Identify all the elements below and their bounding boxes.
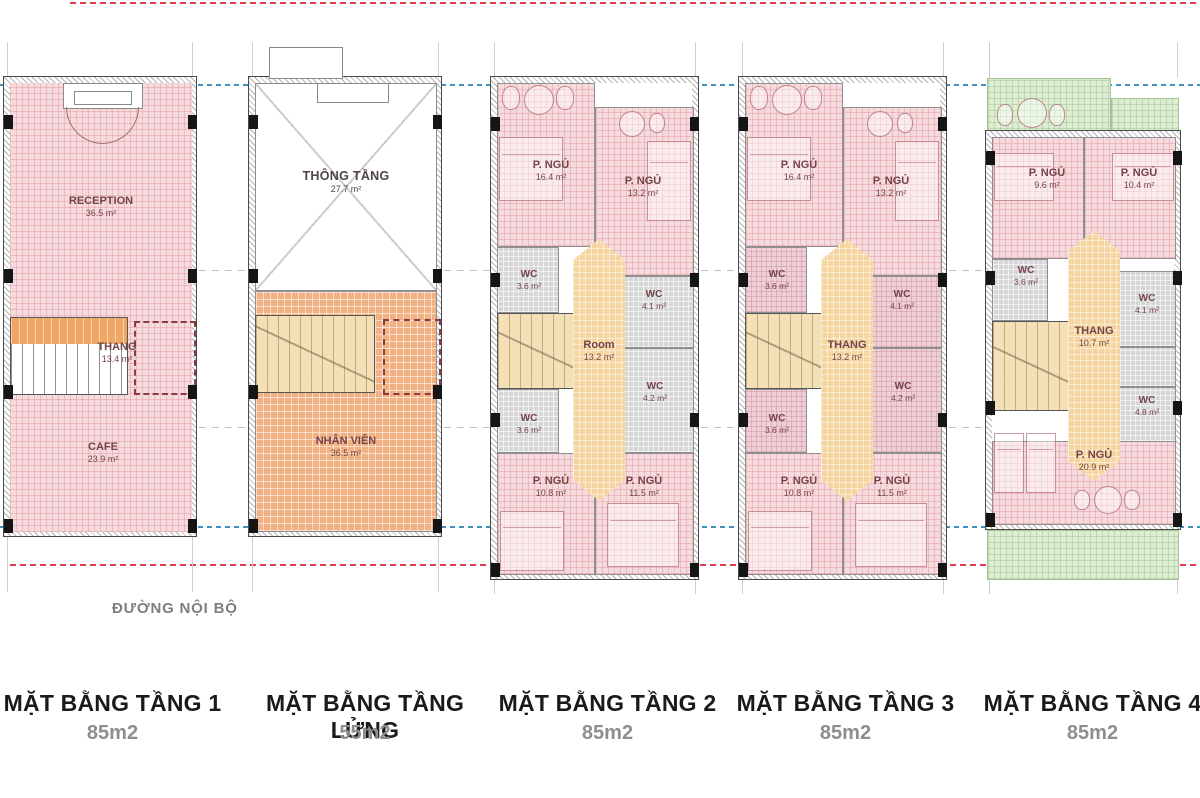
plan-tang4-walls: P. NGỦ 9.6 m² P. NGỦ 10.4 m² WC 3.6 m² W… (985, 130, 1181, 530)
balcony-ledge (317, 83, 389, 103)
round-table (1094, 486, 1122, 514)
chair (1074, 490, 1090, 510)
plan-tang2-interior: P. NGỦ 16.4 m² P. NGỦ 13.2 m² WC 3.6 m² … (497, 83, 692, 573)
column (938, 563, 947, 577)
wc-right-upper (865, 276, 942, 348)
grid-line (989, 42, 990, 78)
round-table (867, 111, 893, 137)
grid-line (252, 537, 253, 592)
room-label-bedroom-3: P. NGỦ 10.8 m² (507, 475, 595, 499)
plan-tang-lung-interior: THÔNG TẦNG 27.7 m² NHÂN VIÊN 36.5 m² (255, 83, 435, 530)
column (491, 563, 500, 577)
room-label-bedroom-3: P. NGỦ 10.8 m² (755, 475, 843, 499)
room-label-bedroom-3: P. NGỦ 20.9 m² (1054, 449, 1134, 473)
title-tang4: MẶT BẰNG TẦNG 4 (980, 690, 1200, 717)
grid-tie-line (444, 427, 490, 428)
column (986, 271, 995, 285)
column (4, 115, 13, 129)
grid-line (742, 580, 743, 594)
grid-line (192, 42, 193, 76)
chair (502, 86, 520, 110)
column (188, 115, 197, 129)
column (4, 385, 13, 399)
grid-line (438, 537, 439, 592)
road-label: ĐƯỜNG NỘI BỘ (112, 600, 238, 617)
column (690, 273, 699, 287)
column (188, 385, 197, 399)
void-dashed-outline (383, 319, 441, 395)
round-table (524, 85, 554, 115)
plan-tang1: RECEPTION 36.5 m² THANG 13.4 m² CAFE 23.… (3, 76, 197, 537)
room-label-wc-2: WC 4.1 m² (871, 289, 933, 311)
bed (1026, 433, 1056, 493)
column (690, 563, 699, 577)
column (739, 563, 748, 577)
column (1173, 513, 1182, 527)
column (433, 385, 442, 399)
grid-line (989, 580, 990, 594)
plan-tang1-interior: RECEPTION 36.5 m² THANG 13.4 m² CAFE 23.… (10, 83, 190, 530)
room-label-central-room: Room 13.2 m² (569, 339, 629, 363)
room-label-bedroom-1: P. NGỦ 16.4 m² (755, 159, 843, 183)
room-label-wc-2: WC 4.1 m² (1119, 293, 1175, 315)
chair (1049, 104, 1065, 126)
room-label-bedroom-1: P. NGỦ 9.6 m² (1009, 167, 1085, 191)
column (4, 269, 13, 283)
grid-line (742, 42, 743, 76)
stair-tang2 (497, 313, 579, 389)
room-label-wc-2: WC 4.1 m² (623, 289, 685, 311)
column (188, 519, 197, 533)
bed (748, 511, 812, 571)
plan-tang3-interior: P. NGỦ 16.4 m² P. NGỦ 13.2 m² WC 3.6 m² … (745, 83, 940, 573)
column (690, 413, 699, 427)
column (188, 269, 197, 283)
bed (994, 433, 1024, 493)
column (938, 117, 947, 131)
room-label-thong-tang: THÔNG TẦNG 27.7 m² (296, 169, 396, 195)
column (491, 273, 500, 287)
grid-line (252, 42, 253, 76)
round-table (1017, 98, 1047, 128)
grid-line (494, 42, 495, 76)
bed (607, 503, 679, 567)
room-label-wc-3: WC 4.2 m² (625, 381, 685, 403)
room-label-wc-1: WC 3.6 m² (500, 269, 558, 291)
grid-line (943, 42, 944, 76)
column (739, 117, 748, 131)
grid-line (695, 580, 696, 594)
room-label-wc-1: WC 3.6 m² (1000, 265, 1052, 287)
floor-plan-sheet: RECEPTION 36.5 m² THANG 13.4 m² CAFE 23.… (0, 0, 1200, 798)
setback-line-top (70, 2, 1200, 4)
column (986, 401, 995, 415)
area-tang2: 85m2 (495, 722, 720, 745)
room-label-nhan-vien: NHÂN VIÊN 36.5 m² (296, 435, 396, 459)
room-label-bedroom-4: P. NGỦ 11.5 m² (600, 475, 688, 499)
column (1173, 271, 1182, 285)
column (739, 413, 748, 427)
column (249, 519, 258, 533)
title-tang1: MẶT BẰNG TẦNG 1 (0, 690, 225, 717)
plan-tang-lung: THÔNG TẦNG 27.7 m² NHÂN VIÊN 36.5 m² (248, 76, 442, 537)
terrace-bottom (987, 530, 1179, 580)
column (433, 115, 442, 129)
room-label-wc-4: WC 3.6 m² (500, 413, 558, 435)
room-label-wc-4: WC 3.6 m² (748, 413, 806, 435)
room-label-central-stair: THANG 10.7 m² (1064, 325, 1124, 349)
grid-line (1177, 580, 1178, 594)
grid-tie-line (949, 270, 985, 271)
room-label-bedroom-2: P. NGỦ 13.2 m² (599, 175, 687, 199)
column (433, 519, 442, 533)
entrance-step (74, 91, 132, 105)
room-label-central-stair: THANG 13.2 m² (817, 339, 877, 363)
room-label-wc-1: WC 3.6 m² (748, 269, 806, 291)
wc-right-upper (617, 276, 694, 348)
bed (855, 503, 927, 567)
stair-tang-lung (255, 315, 375, 393)
title-tang2: MẶT BẰNG TẦNG 2 (495, 690, 720, 717)
column (739, 273, 748, 287)
grid-line (7, 537, 8, 592)
column (1173, 151, 1182, 165)
plan-tang4-interior: P. NGỦ 9.6 m² P. NGỦ 10.4 m² WC 3.6 m² W… (992, 137, 1174, 523)
room-label-bedroom-2: P. NGỦ 13.2 m² (847, 175, 935, 199)
column (690, 117, 699, 131)
grid-line (7, 42, 8, 76)
room-label-wc-3: WC 4.8 m² (1119, 395, 1175, 417)
roof-canopy (269, 47, 343, 79)
grid-tie-line (444, 270, 490, 271)
room-label-reception: RECEPTION 36.5 m² (51, 195, 151, 219)
grid-tie-line (949, 427, 985, 428)
room-label-thang: THANG 13.4 m² (69, 341, 165, 365)
chair (556, 86, 574, 110)
column (433, 269, 442, 283)
plan-tang3: P. NGỦ 16.4 m² P. NGỦ 13.2 m² WC 3.6 m² … (738, 76, 947, 580)
grid-line (494, 580, 495, 594)
column (491, 413, 500, 427)
central-stair-core (1068, 231, 1120, 481)
column (249, 115, 258, 129)
grid-line (438, 42, 439, 76)
area-tang3: 85m2 (733, 722, 958, 745)
chair (897, 113, 913, 133)
central-stair-core (821, 239, 873, 501)
area-tang4: 85m2 (980, 722, 1200, 745)
chair (804, 86, 822, 110)
room-label-bedroom-4: P. NGỦ 11.5 m² (848, 475, 936, 499)
grid-tie-line (701, 427, 738, 428)
column (938, 413, 947, 427)
column (986, 513, 995, 527)
area-tang1: 85m2 (0, 722, 225, 745)
room-label-bedroom-2: P. NGỦ 10.4 m² (1101, 167, 1177, 191)
room-label-cafe: CAFE 23.9 m² (53, 441, 153, 465)
room-label-bedroom-1: P. NGỦ 16.4 m² (507, 159, 595, 183)
column (4, 519, 13, 533)
grid-line (695, 42, 696, 76)
column (491, 117, 500, 131)
bed (500, 511, 564, 571)
grid-line (192, 537, 193, 592)
plan-tang2: P. NGỦ 16.4 m² P. NGỦ 13.2 m² WC 3.6 m² … (490, 76, 699, 580)
grid-tie-line (199, 427, 248, 428)
grid-line (943, 580, 944, 594)
column (938, 273, 947, 287)
chair (1124, 490, 1140, 510)
central-hall (573, 239, 625, 501)
area-tang-lung: 55m2 (250, 722, 480, 745)
grid-tie-line (199, 270, 248, 271)
chair (750, 86, 768, 110)
round-table (619, 111, 645, 137)
column (249, 385, 258, 399)
column (249, 269, 258, 283)
plan-tang4: P. NGỦ 9.6 m² P. NGỦ 10.4 m² WC 3.6 m² W… (985, 78, 1181, 580)
room-label-wc-3: WC 4.2 m² (873, 381, 933, 403)
grid-tie-line (701, 270, 738, 271)
grid-line (1177, 42, 1178, 78)
stair-tang3 (745, 313, 827, 389)
title-tang3: MẶT BẰNG TẦNG 3 (733, 690, 958, 717)
chair (649, 113, 665, 133)
round-table (772, 85, 802, 115)
chair (997, 104, 1013, 126)
column (986, 151, 995, 165)
